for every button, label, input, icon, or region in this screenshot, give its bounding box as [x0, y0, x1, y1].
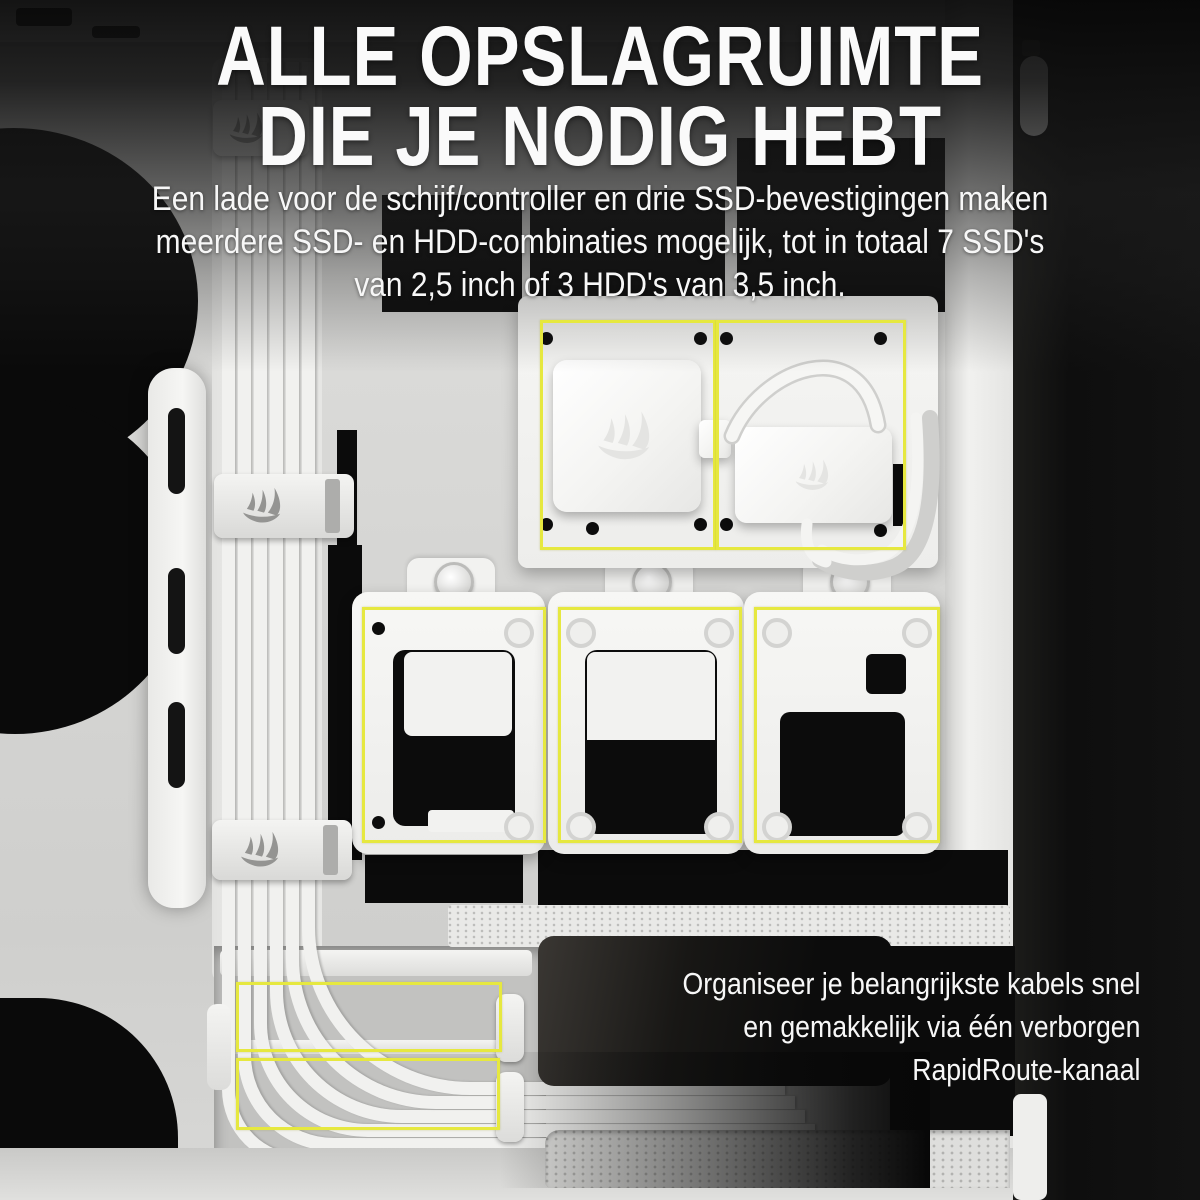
highlight-controller-mount-2	[716, 320, 906, 550]
cable-clip	[212, 820, 352, 880]
highlight-rapidroute-upper	[236, 982, 502, 1052]
highlight-ssd-mount-2	[558, 607, 742, 843]
intro-line-1: Een lade voor de schijf/controller en dr…	[72, 178, 1128, 221]
callout-line-1: Organiseer je belangrijkste kabels snel	[682, 962, 1140, 1005]
title-line-2: DIE JE NODIG HEBT	[108, 96, 1092, 176]
highlight-ssd-mount-3	[754, 607, 940, 843]
product-marketing-image: ALLE OPSLAGRUIMTE DIE JE NODIG HEBT Een …	[0, 0, 1200, 1200]
highlight-controller-mount-1	[540, 320, 716, 550]
highlight-rapidroute-lower	[236, 1058, 500, 1130]
callout-line-2: en gemakkelijk via één verborgen	[682, 1005, 1140, 1048]
corsair-logo-icon	[238, 830, 286, 870]
clip-slot	[323, 825, 338, 875]
highlight-ssd-mount-1	[362, 607, 546, 843]
clip-slot	[325, 479, 340, 533]
cable-clip	[214, 474, 354, 538]
channel-clip	[496, 1072, 524, 1142]
title-line-1: ALLE OPSLAGRUIMTE	[108, 16, 1092, 96]
intro-paragraph: Een lade voor de schijf/controller en dr…	[0, 178, 1200, 307]
intro-line-2: meerdere SSD- en HDD-combinaties mogelij…	[72, 221, 1128, 264]
page-title: ALLE OPSLAGRUIMTE DIE JE NODIG HEBT	[0, 16, 1200, 176]
channel-clip	[207, 1004, 231, 1090]
intro-line-3: van 2,5 inch of 3 HDD's van 3,5 inch.	[72, 264, 1128, 307]
rapidroute-callout: Organiseer je belangrijkste kabels snel …	[608, 962, 1140, 1091]
corsair-logo-icon	[240, 486, 288, 526]
callout-line-3: RapidRoute-kanaal	[682, 1048, 1140, 1091]
rear-bracket-lower	[1013, 1094, 1047, 1200]
